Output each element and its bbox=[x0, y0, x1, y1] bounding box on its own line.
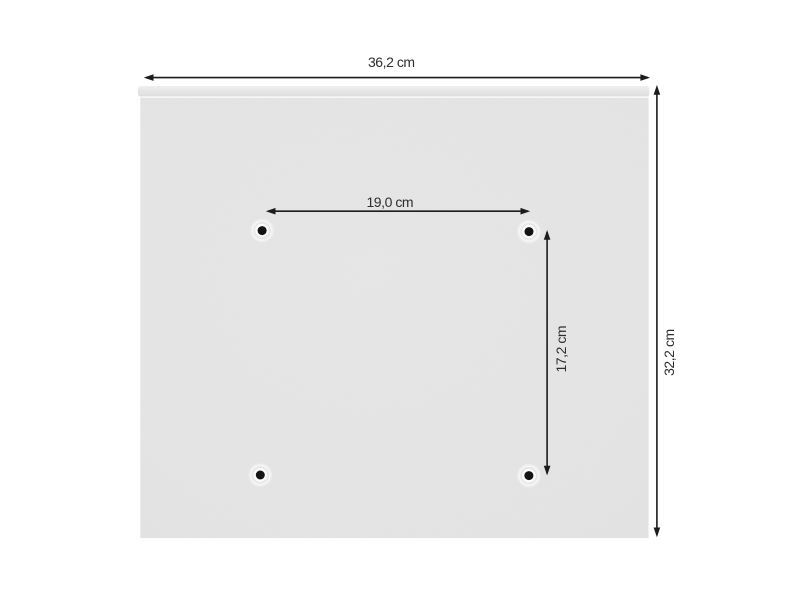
svg-text:32,2 cm: 32,2 cm bbox=[661, 329, 677, 376]
svg-text:17,2 cm: 17,2 cm bbox=[553, 326, 569, 373]
svg-text:36,2 cm: 36,2 cm bbox=[368, 54, 415, 70]
svg-text:19,0 cm: 19,0 cm bbox=[366, 194, 413, 210]
